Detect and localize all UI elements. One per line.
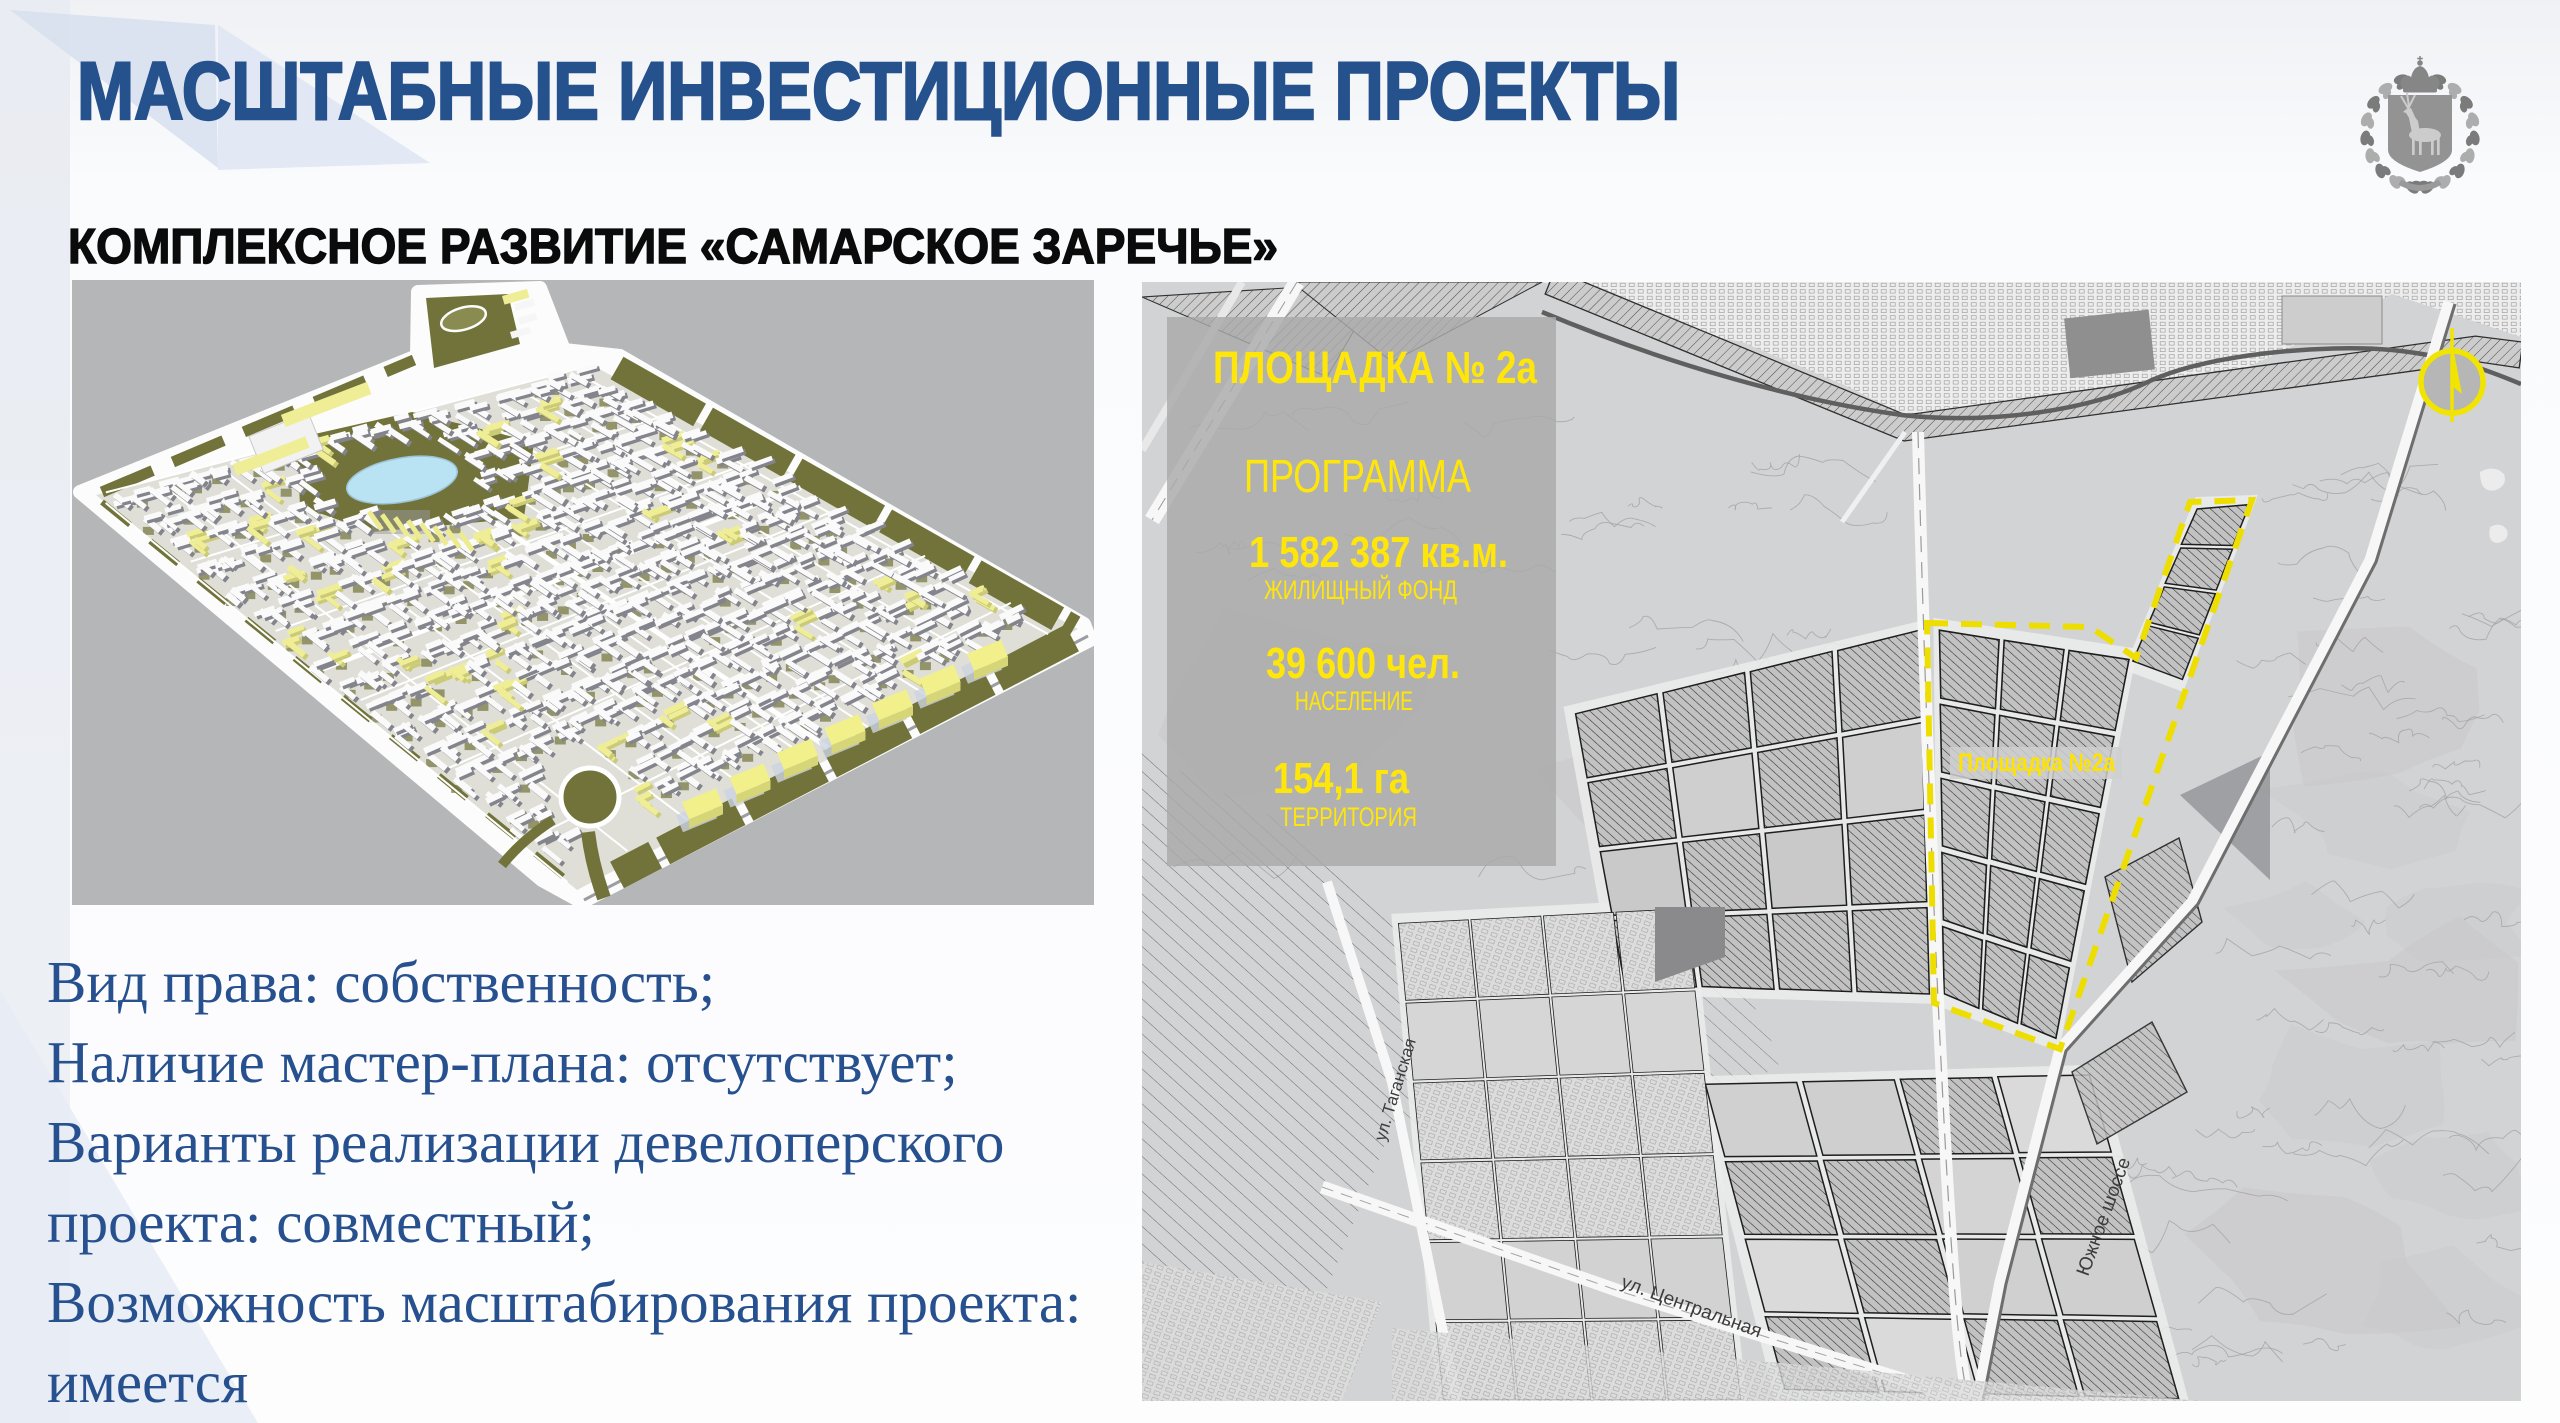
svg-text:НАСЕЛЕНИЕ: НАСЕЛЕНИЕ [1295,686,1413,716]
svg-text:ПЛОЩАДКА № 2а: ПЛОЩАДКА № 2а [1213,342,1538,393]
svg-text:ЖИЛИЩНЫЙ ФОНД: ЖИЛИЩНЫЙ ФОНД [1264,574,1457,605]
svg-text:Площадка №2а: Площадка №2а [1958,749,2116,777]
svg-text:154,1 га: 154,1 га [1273,754,1409,803]
svg-text:ТЕРРИТОРИЯ: ТЕРРИТОРИЯ [1280,802,1417,832]
svg-text:1 582 387 кв.м.: 1 582 387 кв.м. [1249,528,1508,577]
svg-text:ПРОГРАММА: ПРОГРАММА [1244,450,1471,502]
svg-text:39 600 чел.: 39 600 чел. [1266,639,1460,688]
